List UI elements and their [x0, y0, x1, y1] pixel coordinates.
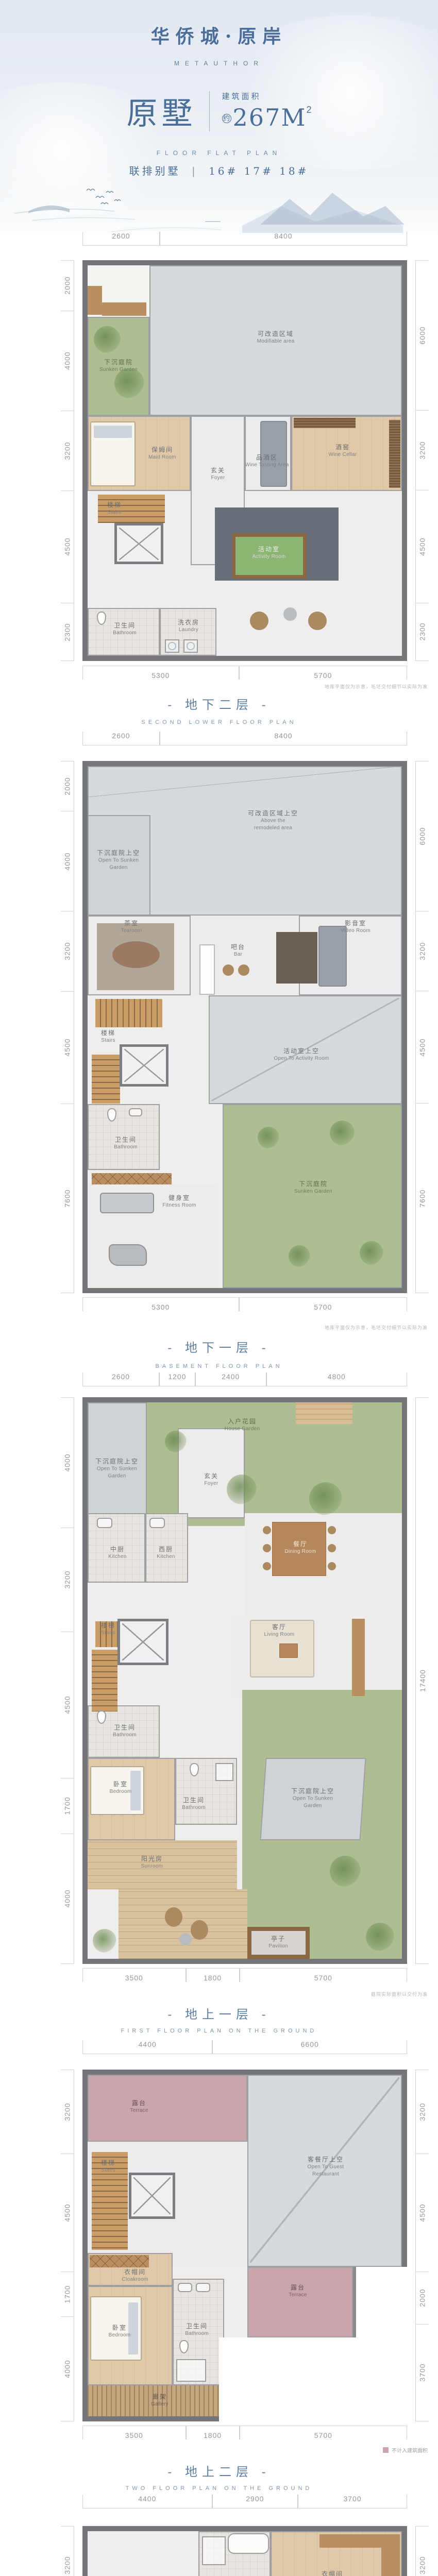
- dim-cell: 5700: [240, 2426, 407, 2439]
- chair: [328, 1544, 336, 1552]
- legend-swatch-icon: [383, 2447, 389, 2453]
- brand-logo-en: METAUTHOR: [0, 60, 438, 67]
- wine-rack: [294, 418, 356, 428]
- plan-disclaimer: 地库平面仅为示意，毛坯交付细节以实际为准: [325, 683, 428, 690]
- tree: [94, 326, 121, 353]
- lounge-chair: [191, 1920, 208, 1940]
- f3-dims-top: 4400 2900 3700: [82, 2495, 407, 2509]
- area-value-row: 约 267M 2: [222, 104, 312, 131]
- dim-cell: 7600: [61, 1104, 74, 1293]
- tree: [227, 1475, 257, 1504]
- b2-dims-bottom: 5300 5700: [82, 666, 407, 680]
- room-label: 活动室Activity Room: [252, 545, 285, 561]
- room-label: 楼梯Stairs: [101, 1029, 115, 1044]
- dim-cell: 3200: [61, 911, 74, 991]
- room-label: 楼梯Stairs: [101, 1621, 115, 1637]
- chair: [328, 1526, 336, 1534]
- dim-cell: 5300: [82, 666, 239, 680]
- room-label: 可改造区域Modifiable area: [257, 330, 295, 345]
- room-label: 可改造区域上空Above the remodeled area: [247, 809, 299, 831]
- room-label: 阳光房Sunroom: [141, 1855, 163, 1870]
- bed: [90, 421, 136, 486]
- stove: [149, 1518, 165, 1528]
- lounge-chair: [165, 1907, 182, 1927]
- tree: [330, 1856, 361, 1887]
- dim-cell: 1800: [186, 2426, 240, 2439]
- room-label: 保姆间Maid Room: [148, 446, 176, 461]
- f3-dims-right: 3200 4500 5700: [415, 2526, 429, 2576]
- f3-floorplan: 卫生间Bathroom 衣帽间Cloakroom 楼梯Stairs 主卧室Mas…: [82, 2526, 407, 2576]
- room-label: 酒窖Wine Cellar: [329, 443, 357, 459]
- plan-disclaimer: 庭院实际面积以交付为准: [371, 1991, 428, 1997]
- dim-cell: 3500: [82, 1968, 186, 1982]
- f2-dims-right: 3200 4500 2000 3700: [415, 2070, 429, 2421]
- dim-cell: 4400: [82, 2040, 212, 2054]
- dim-cell: 4000: [61, 1834, 74, 1964]
- area-about: 约: [222, 114, 231, 123]
- sink: [196, 2283, 210, 2292]
- tree: [366, 1923, 394, 1951]
- dim-cell: 4500: [415, 2154, 429, 2272]
- dim-cell: 3200: [61, 2526, 74, 2576]
- dim-cell: 2000: [61, 260, 74, 311]
- room-label: 卫生间Bathroom: [114, 1136, 138, 1151]
- b1-floorplan: 可改造区域上空Above the remodeled area 下沉庭院上空Op…: [82, 761, 407, 1293]
- dim-cell: 3700: [298, 2495, 407, 2509]
- legend-text: 不计入建筑面积: [392, 2446, 428, 2454]
- b2-dims-right: 6000 3200 4500 2300: [415, 260, 429, 661]
- b1-caption-en: BASEMENT FLOOR PLAN: [0, 1361, 438, 1370]
- dim-cell: 8400: [160, 732, 407, 745]
- area-label: 建筑面积: [222, 91, 261, 101]
- dim-cell: 6000: [415, 761, 429, 911]
- dim-cell: 4000: [61, 811, 74, 911]
- room-label: 衣帽间Cloakroom: [122, 2268, 148, 2283]
- tree: [165, 1431, 187, 1452]
- bar-stool: [238, 964, 249, 976]
- b2-caption-cn: - 地下二层 -: [0, 694, 438, 713]
- entry-walk: [296, 1402, 352, 1424]
- bar-stool: [223, 964, 234, 976]
- dim-cell: 2600: [82, 732, 160, 745]
- f2-caption-cn: - 地上二层 -: [0, 2462, 438, 2480]
- dim-cell: 4000: [61, 2316, 74, 2421]
- chair: [263, 1544, 271, 1552]
- room-label: 卫生间Bathroom: [182, 1796, 206, 1811]
- dim-cell: 2000: [415, 2272, 429, 2324]
- b1-dims-bottom: 5300 5700: [82, 1297, 407, 1311]
- f2-terrace-2: [247, 2267, 353, 2337]
- room-label: 茶室Tearoom: [121, 919, 142, 935]
- wine-rack: [389, 420, 400, 488]
- dim-cell: 6600: [212, 2040, 407, 2054]
- page-title: 原墅: [127, 89, 197, 133]
- chair: [263, 1562, 271, 1570]
- room-label: 入户花园House Garden: [225, 1417, 260, 1433]
- coffee-table: [279, 1643, 298, 1658]
- dim-cell: 4000: [61, 311, 74, 411]
- room-label: 亭子Pavilion: [268, 1935, 288, 1950]
- dim-cell: 3200: [415, 2526, 429, 2576]
- tea-table: [112, 941, 160, 968]
- dim-cell: 4800: [266, 1372, 407, 1386]
- exercise-bike: [109, 1244, 147, 1266]
- dim-cell: 3200: [61, 411, 74, 490]
- f2-dims-top: 4400 6600: [82, 2040, 407, 2054]
- dim-cell: 4500: [415, 490, 429, 602]
- room-label: 吧台Bar: [231, 943, 245, 958]
- title-divider: [209, 91, 210, 131]
- dim-cell: 2300: [61, 603, 74, 661]
- elevator: [120, 1044, 169, 1087]
- f1-dims-left: 4000 3200 4500 1700 4000: [61, 1397, 74, 1964]
- room-label: 廊架Gallery: [151, 2393, 169, 2408]
- dim-cell: 4500: [61, 1632, 74, 1778]
- dim-cell: 3200: [415, 410, 429, 490]
- f1-caption-en: FIRST FLOOR PLAN ON THE GROUND: [0, 2026, 438, 2035]
- room-label: 西厨Kitchen: [157, 1545, 175, 1561]
- f1-dims-right: 17400: [415, 1397, 429, 1964]
- room-label: 卫生间Bathroom: [113, 1723, 137, 1739]
- cut-line: [88, 766, 402, 797]
- stairs-steps: [92, 1055, 120, 1104]
- header-landscape-art: [0, 174, 438, 234]
- dim-cell: 5700: [240, 1968, 407, 1982]
- wardrobe: [90, 2255, 149, 2267]
- room-label: 客餐厅上空Open To Guest Restaurant: [300, 2155, 351, 2177]
- b1-dims-right: 6000 3200 4500 7600: [415, 761, 429, 1293]
- room-label: 玄关Foyer: [211, 466, 225, 482]
- treadmill: [100, 1193, 154, 1213]
- room-label: 餐厅Dining Room: [284, 1540, 316, 1555]
- b1-dims-top: 2600 8400: [82, 732, 407, 745]
- area-sup: 2: [306, 105, 311, 115]
- dim-cell: 4500: [61, 490, 74, 603]
- dim-cell: 1200: [159, 1372, 195, 1386]
- shower: [215, 1763, 233, 1781]
- brand-logo-cn: 华侨城·原岸: [0, 22, 438, 48]
- dim-cell: 3500: [82, 2426, 186, 2439]
- f2-dims-bottom: 3500 1800 5700: [82, 2426, 407, 2439]
- room-label: 卫生间Bathroom: [113, 621, 137, 637]
- b1-caption-cn: - 地下一层 -: [0, 1337, 438, 1355]
- chair: [328, 1562, 336, 1570]
- shower: [202, 2536, 226, 2565]
- room-label: 中厨Kitchen: [108, 1545, 126, 1561]
- room-label: 下沉庭院Sunken Garden: [99, 358, 138, 374]
- chair: [263, 1526, 271, 1534]
- bathtub: [228, 2533, 269, 2554]
- stairs-steps: [95, 999, 162, 1027]
- area-legend: 不计入建筑面积: [383, 2446, 428, 2454]
- dim-cell: 5700: [239, 1297, 407, 1311]
- f2-floorplan: 露台Terrace 客餐厅上空Open To Guest Restaurant …: [82, 2070, 407, 2421]
- b1-dims-left: 2000 4000 3200 4500 7600: [61, 761, 74, 1293]
- washer: [183, 639, 198, 653]
- shower: [176, 2359, 206, 2382]
- dim-cell: 6000: [415, 260, 429, 410]
- bar-counter: [199, 944, 215, 995]
- lounge-chair: [308, 612, 327, 630]
- room-label: 下沉庭院上空Open To Sunken Garden: [91, 1457, 143, 1479]
- dim-cell: 1700: [61, 2272, 74, 2316]
- room-label: 健身室Fitness Room: [162, 1194, 196, 1209]
- room-label: 衣帽间Cloakroom: [319, 2570, 345, 2576]
- dim-cell: 4500: [415, 991, 429, 1103]
- dim-cell: 3700: [415, 2324, 429, 2421]
- dim-cell: 4000: [61, 1397, 74, 1528]
- plan-disclaimer: 地库平面仅为示意，毛坯交付细节以实际为准: [325, 1324, 428, 1331]
- dim-cell: 2600: [82, 1372, 159, 1386]
- room-label: 品酒区Wine Tasting Area: [245, 453, 289, 469]
- room-label: 下沉庭院上空Open To Sunken Garden: [93, 849, 144, 871]
- tree: [258, 1127, 279, 1148]
- title-row: 原墅 建筑面积 约 267M 2: [0, 89, 438, 133]
- sink: [178, 2283, 192, 2292]
- dim-cell: 1800: [186, 1968, 240, 1982]
- f2-terrace: [88, 2075, 247, 2142]
- dim-cell: 1700: [61, 1778, 74, 1834]
- f1-dims-bottom: 3500 1800 5700: [82, 1968, 407, 1982]
- dim-cell: 8400: [160, 232, 407, 246]
- b2-caption-en: SECOND LOWER FLOOR PLAN: [0, 717, 438, 726]
- sofa: [318, 926, 347, 987]
- room-label: 卧室Bedroom: [110, 1780, 132, 1795]
- f2-dims-left: 3200 4500 1700 4000: [61, 2070, 74, 2421]
- room-label: 洗衣房Laundry: [178, 618, 199, 634]
- room-label: 客厅Living Room: [264, 1623, 295, 1638]
- tree: [330, 1121, 355, 1145]
- dim-cell: 5300: [82, 1297, 239, 1311]
- room-label: 活动室上空Open To Activity Room: [274, 1047, 329, 1062]
- area-value: 267M: [233, 104, 307, 131]
- f1-caption-cn: - 地上一层 -: [0, 2004, 438, 2022]
- side-table: [179, 1933, 192, 1945]
- dim-cell: 2900: [212, 2495, 298, 2509]
- dim-cell: 4400: [82, 2495, 212, 2509]
- tree: [93, 1929, 116, 1953]
- b2-dims-left: 2000 4000 3200 4500 2300: [61, 260, 74, 661]
- dim-cell: 5700: [239, 666, 407, 680]
- stairs-steps: [92, 1650, 117, 1711]
- elevator: [117, 1619, 169, 1665]
- room-label: 楼梯Stairs: [107, 501, 122, 516]
- dim-cell: 2600: [82, 232, 160, 246]
- area-block: 建筑面积 约 267M 2: [222, 91, 312, 131]
- dim-cell: 2300: [415, 603, 429, 661]
- dim-cell: 2000: [61, 761, 74, 811]
- dim-cell: 2400: [195, 1372, 266, 1386]
- dim-cell: 3200: [415, 2070, 429, 2154]
- storage-cabinets: [92, 1173, 172, 1184]
- room-label: 卧室Bedroom: [109, 2324, 131, 2339]
- room-label: 露台Terrace: [289, 2283, 307, 2299]
- room-label: 下沉庭院上空Open To Sunken Garden: [287, 1787, 339, 1809]
- f1-floorplan: 入户花园House Garden 下沉庭院上空Open To Sunken Ga…: [82, 1397, 407, 1964]
- elevator: [114, 523, 163, 564]
- wardrobe: [381, 2534, 400, 2576]
- dim-cell: 7600: [415, 1103, 429, 1293]
- f2-caption-en: TWO FLOOR PLAN ON THE GROUND: [0, 2483, 438, 2493]
- tv-cabinet: [352, 1619, 365, 1696]
- video-rug: [276, 932, 317, 984]
- dim-cell: 17400: [415, 1397, 429, 1964]
- cabinet: [88, 286, 102, 315]
- room-label: 露台Terrace: [130, 2099, 148, 2114]
- room-label: 影音室Video Room: [341, 919, 370, 935]
- tree: [289, 1245, 310, 1267]
- dim-cell: 3200: [61, 1528, 74, 1632]
- open-area: [219, 2337, 407, 2421]
- room-label: 下沉庭院Sunken Garden: [294, 1180, 332, 1195]
- dim-cell: 4500: [61, 991, 74, 1104]
- f1-dims-top: 2600 1200 2400 4800: [82, 1372, 407, 1386]
- f3-dims-left: 3200 4500 5700: [61, 2526, 74, 2576]
- b2-dims-top: 2600 8400: [82, 232, 407, 246]
- dim-cell: 4500: [61, 2154, 74, 2272]
- room-label: 卫生间Bathroom: [185, 2322, 209, 2337]
- poster-page: 华侨城·原岸 METAUTHOR 原墅 建筑面积 约 267M 2 FLOOR …: [0, 0, 438, 2576]
- b2-floorplan: 下沉庭院Sunken Garden 可改造区域Modifiable area 保…: [82, 260, 407, 661]
- dim-cell: 3200: [61, 2070, 74, 2154]
- lounge-chair: [250, 612, 268, 630]
- tree: [309, 1482, 342, 1515]
- tree: [360, 1241, 383, 1265]
- elevator: [129, 2173, 175, 2219]
- washer: [165, 639, 179, 653]
- bench: [102, 302, 146, 316]
- stove: [97, 1518, 112, 1528]
- room-label: 楼梯Stairs: [101, 2159, 115, 2174]
- floor-flat-plan-label: FLOOR FLAT PLAN: [0, 149, 438, 157]
- side-table: [283, 607, 297, 621]
- room-label: 玄关Foyer: [204, 1472, 218, 1487]
- dim-cell: 3200: [415, 911, 429, 991]
- sink: [129, 1108, 142, 1116]
- f1-garden-deck: [119, 1889, 247, 1959]
